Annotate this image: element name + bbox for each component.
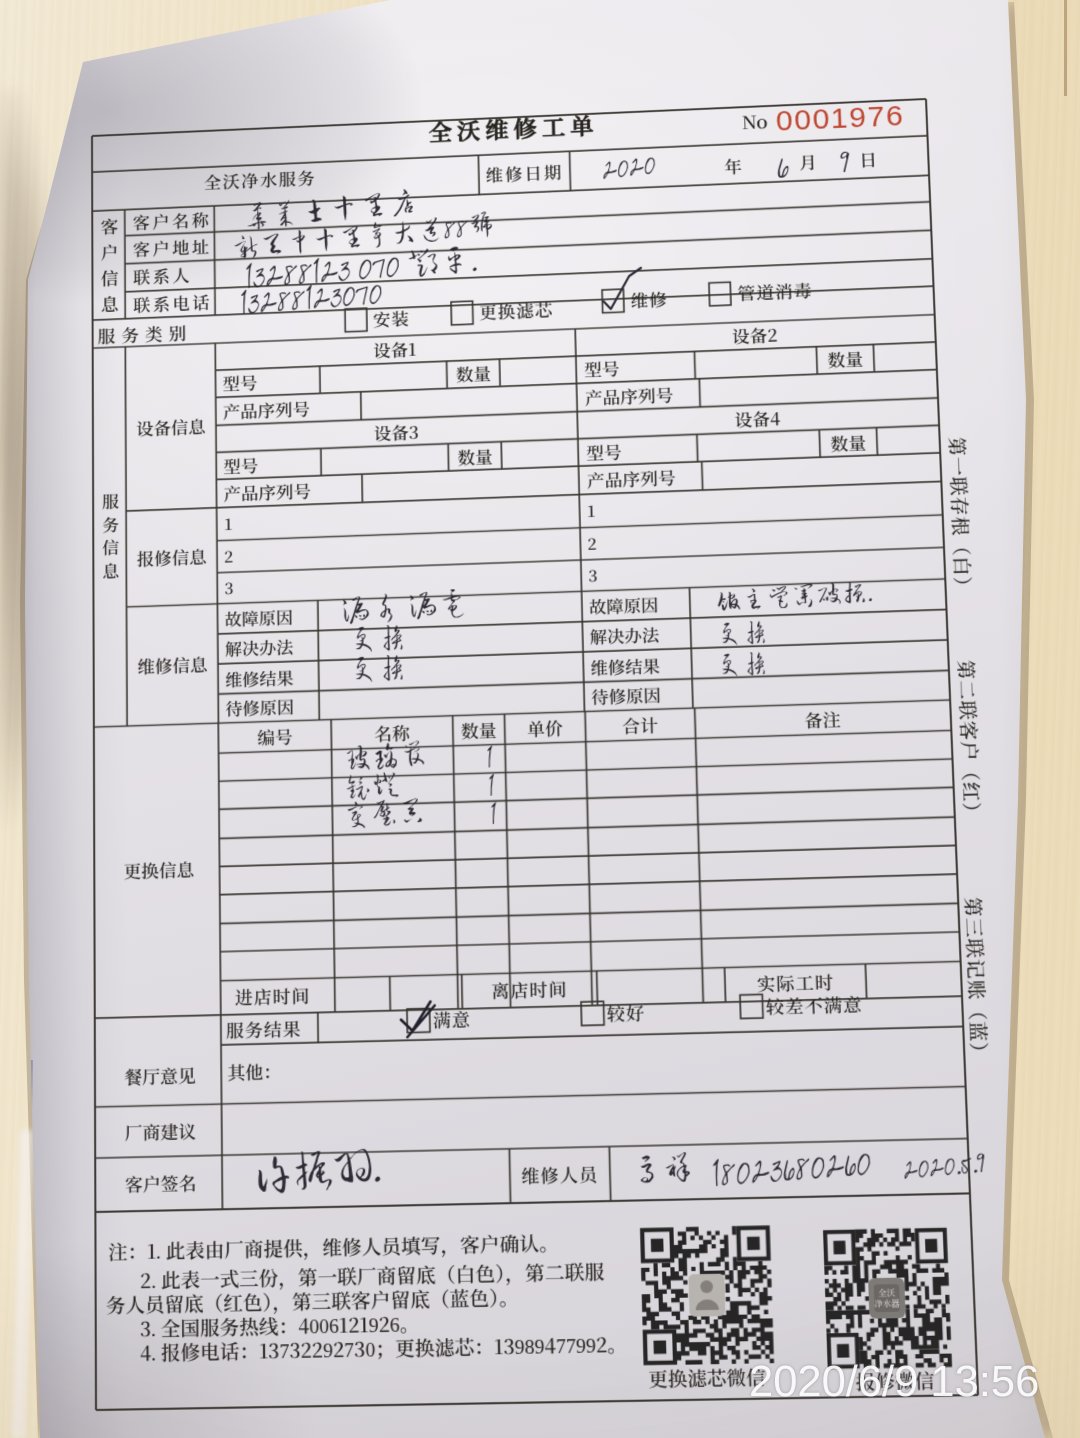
svg-text:单价: 单价 bbox=[527, 715, 564, 741]
svg-text:其他：: 其他： bbox=[227, 1058, 281, 1085]
svg-text:较好: 较好 bbox=[606, 999, 645, 1026]
svg-text:故障原因: 故障原因 bbox=[589, 591, 659, 618]
svg-text:数量: 数量 bbox=[830, 429, 867, 455]
svg-text:1: 1 bbox=[224, 512, 233, 535]
svg-text:维修结果: 维修结果 bbox=[590, 652, 660, 679]
svg-text:较差不满意: 较差不满意 bbox=[765, 991, 863, 1019]
svg-text:维修信息: 维修信息 bbox=[137, 651, 207, 678]
svg-text:待修原因: 待修原因 bbox=[591, 682, 661, 709]
svg-text:故障原因: 故障原因 bbox=[225, 604, 293, 631]
svg-text:进店时间: 进店时间 bbox=[235, 983, 311, 1011]
svg-text:3: 3 bbox=[224, 576, 233, 599]
svg-text:型号: 型号 bbox=[222, 370, 257, 396]
svg-text:1: 1 bbox=[486, 743, 493, 770]
svg-text:备注: 备注 bbox=[804, 706, 841, 733]
svg-text:客户名称: 客户名称 bbox=[133, 207, 212, 234]
svg-text:变压器: 变压器 bbox=[341, 795, 427, 830]
svg-text:2020: 2020 bbox=[601, 150, 657, 181]
svg-text:维修: 维修 bbox=[630, 287, 668, 313]
svg-text:设备信息: 设备信息 bbox=[136, 413, 206, 440]
svg-text:服: 服 bbox=[102, 488, 119, 513]
svg-text:联系人: 联系人 bbox=[133, 263, 192, 289]
svg-text:6: 6 bbox=[777, 148, 790, 180]
svg-text:更换: 更换 bbox=[715, 649, 769, 679]
svg-text:客户签名: 客户签名 bbox=[125, 1170, 197, 1198]
svg-text:客: 客 bbox=[101, 213, 119, 239]
svg-text:馆主营业破损.: 馆主营业破损. bbox=[715, 578, 873, 614]
svg-text:解决办法: 解决办法 bbox=[225, 634, 294, 661]
svg-text:联系电话: 联系电话 bbox=[133, 290, 212, 317]
svg-text:0001976: 0001976 bbox=[775, 100, 904, 138]
svg-text:年: 年 bbox=[724, 154, 743, 179]
svg-text:净水器: 净水器 bbox=[874, 1297, 900, 1310]
svg-text:满意: 满意 bbox=[433, 1006, 472, 1033]
svg-text:1: 1 bbox=[586, 499, 596, 522]
svg-text:户: 户 bbox=[101, 239, 119, 265]
svg-text:3: 3 bbox=[588, 564, 598, 587]
svg-text:许振羽.: 许振羽. bbox=[249, 1140, 382, 1198]
svg-text:设备4: 设备4 bbox=[734, 405, 781, 431]
svg-text:离店时间: 离店时间 bbox=[491, 976, 568, 1004]
svg-text:全沃净水服务: 全沃净水服务 bbox=[204, 165, 316, 194]
svg-text:马祥: 马祥 bbox=[630, 1152, 694, 1186]
svg-text:编号: 编号 bbox=[257, 723, 293, 749]
svg-text:务: 务 bbox=[102, 511, 119, 536]
svg-text:息: 息 bbox=[101, 291, 119, 317]
svg-text:18023680260: 18023680260 bbox=[711, 1144, 873, 1189]
svg-text:厂商建议: 厂商建议 bbox=[125, 1117, 197, 1145]
svg-text:信: 信 bbox=[101, 265, 119, 291]
svg-text:数量: 数量 bbox=[827, 346, 864, 372]
svg-text:产品序列号: 产品序列号 bbox=[223, 396, 311, 424]
svg-text:报修信息: 报修信息 bbox=[137, 544, 207, 571]
svg-text:设备1: 设备1 bbox=[373, 337, 417, 363]
svg-text:型号: 型号 bbox=[223, 452, 258, 478]
svg-text:1: 1 bbox=[490, 799, 497, 826]
svg-text:9: 9 bbox=[840, 147, 851, 175]
svg-text:信: 信 bbox=[102, 534, 119, 559]
svg-text:1: 1 bbox=[488, 771, 495, 798]
svg-text:玻璃管: 玻璃管 bbox=[343, 738, 429, 772]
svg-text:更换: 更换 bbox=[348, 652, 407, 684]
svg-text:维修日期: 维修日期 bbox=[485, 159, 563, 186]
svg-text:漏水 漏电: 漏水 漏电 bbox=[340, 587, 469, 626]
svg-text:数量: 数量 bbox=[457, 443, 493, 469]
svg-text:待修原因: 待修原因 bbox=[225, 694, 294, 721]
svg-text:安装: 安装 bbox=[373, 306, 410, 332]
svg-text:客户地址: 客户地址 bbox=[133, 234, 212, 261]
svg-text:型号: 型号 bbox=[586, 439, 622, 465]
svg-text:更换滤芯: 更换滤芯 bbox=[479, 297, 554, 324]
svg-text:型号: 型号 bbox=[584, 356, 620, 382]
svg-text:更换: 更换 bbox=[348, 622, 407, 654]
svg-text:维修结果: 维修结果 bbox=[225, 664, 294, 691]
svg-text:合计: 合计 bbox=[622, 712, 659, 738]
svg-text:数量: 数量 bbox=[461, 717, 497, 743]
svg-text:设备3: 设备3 bbox=[373, 419, 418, 445]
svg-text:2: 2 bbox=[587, 532, 597, 555]
svg-text:更换: 更换 bbox=[715, 618, 769, 648]
svg-text:产品序列号: 产品序列号 bbox=[585, 381, 674, 409]
svg-text:产品序列号: 产品序列号 bbox=[223, 478, 311, 506]
svg-text:维修人员: 维修人员 bbox=[521, 1161, 599, 1189]
svg-text:管道消毒: 管道消毒 bbox=[737, 278, 813, 305]
svg-text:数量: 数量 bbox=[456, 361, 492, 387]
svg-text:服务类别: 服务类别 bbox=[98, 319, 193, 348]
svg-text:息: 息 bbox=[102, 557, 119, 582]
svg-text:日: 日 bbox=[859, 147, 878, 172]
svg-text:No: No bbox=[742, 109, 769, 135]
svg-text:更换信息: 更换信息 bbox=[124, 856, 195, 883]
svg-text:服务结果: 服务结果 bbox=[226, 1015, 302, 1043]
svg-text:解决办法: 解决办法 bbox=[590, 622, 660, 649]
svg-text:2: 2 bbox=[224, 545, 233, 568]
svg-text:月: 月 bbox=[799, 149, 817, 174]
svg-text:设备2: 设备2 bbox=[732, 322, 778, 348]
svg-text:全沃维修工单: 全沃维修工单 bbox=[428, 108, 599, 147]
svg-text:餐厅意见: 餐厅意见 bbox=[124, 1062, 196, 1089]
svg-text:产品序列号: 产品序列号 bbox=[587, 464, 677, 492]
